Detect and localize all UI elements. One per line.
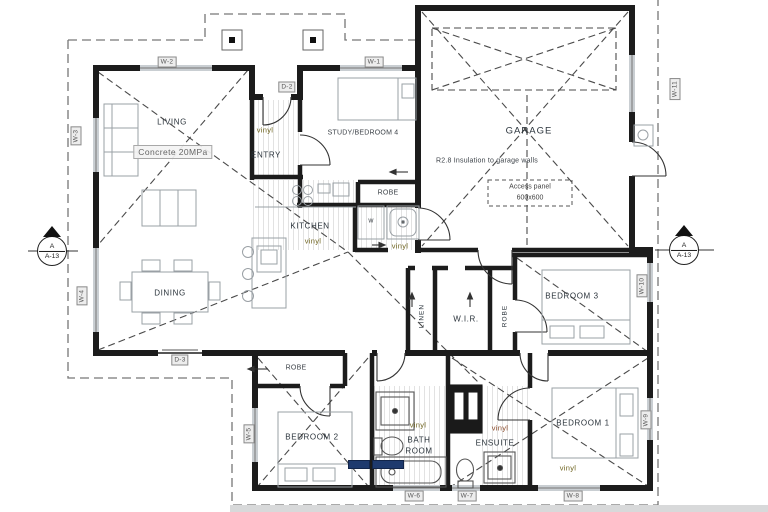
- section-marker-right: A A-13: [669, 235, 699, 265]
- room-label-bathroom: BATH ROOM: [405, 436, 432, 457]
- room-label-kitchen: KITCHEN: [290, 222, 329, 231]
- room-label-garage: GARAGE: [506, 126, 553, 137]
- concrete-note: Concrete 20MPa: [133, 145, 212, 159]
- room-label-dining: DINING: [154, 289, 186, 298]
- finish-vinyl-laundry: vinyl: [392, 242, 409, 251]
- floorplan-linework: [0, 0, 768, 512]
- door-swings: [263, 97, 666, 420]
- porch-posts: [222, 30, 323, 50]
- tag-d2: D-2: [278, 82, 295, 93]
- garage-insulation-note: R2.8 Insulation to garage walls: [436, 158, 538, 165]
- tag-w4: W-4: [77, 287, 88, 306]
- robe-label-hall: ROBE: [286, 365, 307, 372]
- bath-fixture-tag-1: [348, 460, 370, 469]
- room-label-bedroom1: BEDROOM 1: [556, 419, 609, 428]
- room-label-bedroom2: BEDROOM 2: [285, 433, 338, 442]
- tag-w6: W-6: [405, 491, 424, 502]
- section-arrow-icon: [43, 226, 61, 237]
- tag-w2: W-2: [158, 57, 177, 68]
- finish-vinyl-bath: vinyl: [410, 421, 427, 430]
- section-arrow-icon: [675, 225, 693, 236]
- bath-fixtures: [374, 385, 515, 488]
- tag-w10: W-10: [637, 275, 648, 298]
- wir-label: W.I.R.: [453, 315, 478, 324]
- finish-vinyl-entry: vinyl: [257, 126, 274, 135]
- tag-w5: W-5: [244, 425, 255, 444]
- tag-w9: W-9: [641, 411, 652, 430]
- tag-d3: D-3: [171, 355, 188, 366]
- room-label-living: LIVING: [157, 118, 187, 127]
- eaves-dashed-outline: [68, 0, 658, 505]
- section-letter: A: [671, 242, 697, 251]
- robe-label-bed3: ROBE: [502, 305, 509, 327]
- room-label-bedroom3: BEDROOM 3: [545, 292, 598, 301]
- finish-vinyl-bedroom1: vinyl: [560, 464, 577, 473]
- room-label-ensuite: ENSUITE: [476, 439, 515, 448]
- section-letter: A: [39, 243, 65, 252]
- linen-label: LINEN: [419, 304, 426, 328]
- robe-label-study: ROBE: [378, 190, 399, 197]
- tag-w1: W-1: [365, 57, 384, 68]
- room-label-entry: ENTRY: [251, 151, 281, 160]
- section-marker-left: A A-13: [37, 236, 67, 266]
- washer-label: w: [368, 218, 373, 225]
- section-sheet: A-13: [45, 252, 59, 260]
- tag-w3: W-3: [71, 127, 82, 146]
- sheet-edge: [230, 505, 768, 512]
- bath-fixture-tag-2: [372, 460, 404, 469]
- section-sheet: A-13: [677, 251, 691, 259]
- tag-w8: W-8: [564, 491, 583, 502]
- tag-w7: W-7: [458, 491, 477, 502]
- floor-plan: LIVING Concrete 20MPa ENTRY vinyl STUDY/…: [0, 0, 768, 512]
- sliding-door-d3: [158, 350, 202, 353]
- room-label-study: STUDY/BEDROOM 4: [328, 130, 399, 137]
- finish-vinyl-ensuite: vinyl: [492, 424, 509, 433]
- tag-w11: W-11: [670, 78, 681, 100]
- access-panel-note: Access panel 600x600: [509, 183, 551, 204]
- finish-vinyl-kitchen: vinyl: [305, 237, 322, 246]
